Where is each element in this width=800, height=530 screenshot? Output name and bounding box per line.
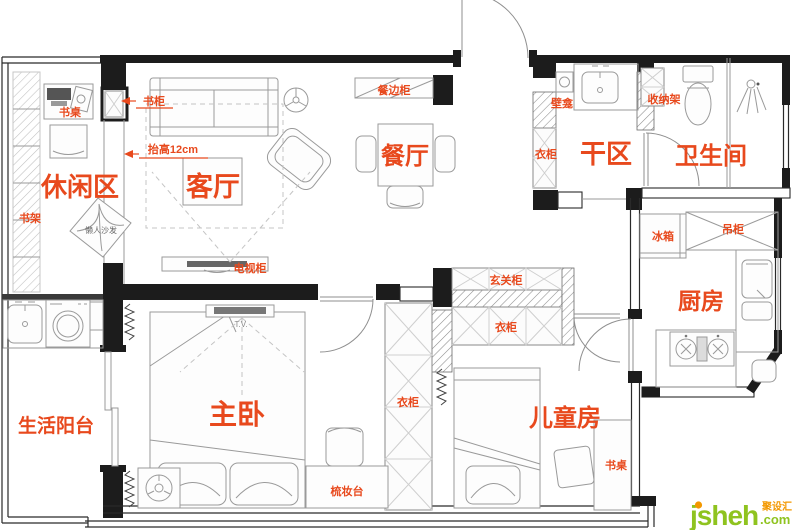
room-label-bath: 卫生间: [675, 143, 747, 170]
room-label-kitchen: 厨房: [678, 288, 724, 314]
living-room: [146, 78, 335, 273]
label-wardrobe-hall: 衣柜: [495, 320, 517, 334]
fan-wheel: [284, 88, 308, 112]
label-desk-kids: 书桌: [605, 458, 628, 472]
label-tv-mark: T.V.: [234, 320, 247, 329]
room-label-living: 客厅: [186, 171, 240, 202]
floorplan-image: 休闲区 客厅 餐厅 干区 卫生间 厨房 生活阳台 主卧 儿童房 书桌 书柜 书架…: [0, 0, 800, 530]
label-tv-cabinet: 电视柜: [234, 261, 267, 275]
label-hanging-cabinet: 吊柜: [722, 222, 744, 236]
label-dresser: 梳妆台: [330, 484, 364, 498]
room-label-leisure: 休闲区: [40, 172, 119, 202]
label-entry-cabinet: 玄关柜: [490, 273, 523, 287]
toilet: [683, 66, 713, 125]
room-label-dining: 餐厅: [381, 143, 429, 170]
master-tv: [206, 305, 274, 317]
watermark: jsheh 聚设汇 .com: [689, 500, 792, 530]
ac-unit: [138, 468, 180, 508]
label-desk-leisure: 书桌: [59, 105, 82, 119]
stove: [670, 332, 734, 366]
label-raise-note: 抬高12cm: [148, 142, 198, 156]
watermark-suffix: .com: [760, 512, 790, 527]
room-label-balcony: 生活阳台: [18, 414, 94, 437]
life-balcony: [3, 300, 103, 348]
room-label-dry: 干区: [580, 139, 632, 169]
balcony-sliding-door: [105, 352, 118, 466]
room-label-kids: 儿童房: [529, 404, 601, 432]
label-wardrobe-dry: 衣柜: [535, 147, 557, 161]
bookcase-nook: [105, 91, 123, 117]
bookshelf-strip: [13, 72, 40, 292]
sofa: [150, 78, 278, 136]
label-fridge: 冰箱: [652, 229, 674, 243]
master-door: [320, 297, 373, 352]
label-storage-rack: 收纳架: [648, 92, 681, 106]
kids-door: [574, 314, 620, 362]
label-bookshelf: 书架: [19, 211, 41, 225]
label-beanbag: 懒人沙发: [85, 225, 117, 235]
label-niche: 壁龛: [551, 96, 574, 110]
entry-door: [462, 0, 528, 58]
kitchen-door: [579, 319, 633, 371]
floorplan-svg: 休闲区 客厅 餐厅 干区 卫生间 厨房 生活阳台 主卧 儿童房 书桌 书柜 书架…: [0, 0, 800, 530]
label-bookcase: 书柜: [143, 94, 165, 108]
label-sideboard: 餐边柜: [377, 83, 411, 97]
kids-room: [454, 368, 631, 510]
kids-bed: [454, 368, 540, 508]
washing-machine: [46, 300, 90, 347]
room-label-master: 主卧: [209, 399, 265, 430]
watermark-dot-icon: [695, 501, 702, 508]
label-wardrobe-master: 衣柜: [397, 395, 419, 409]
